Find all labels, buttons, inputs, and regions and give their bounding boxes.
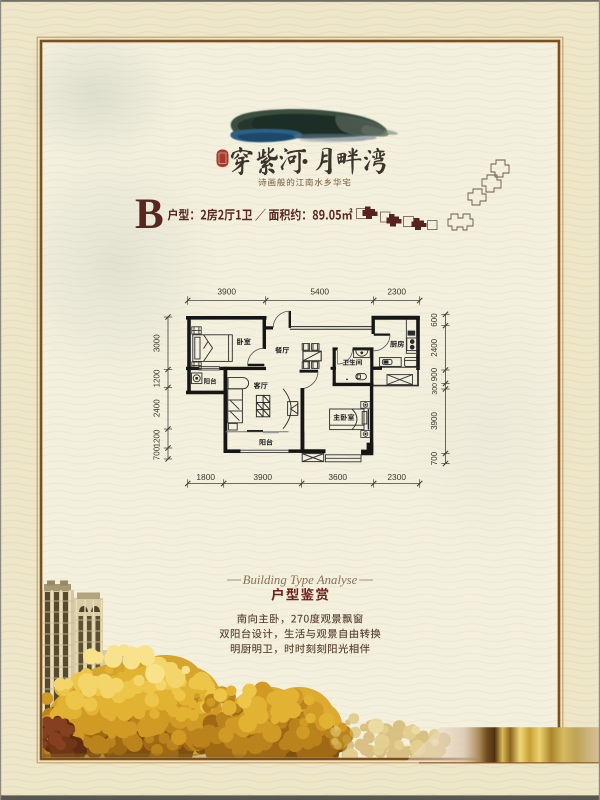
svg-text:3000: 3000 (153, 334, 162, 352)
svg-text:5400: 5400 (310, 287, 329, 297)
svg-text:2400: 2400 (430, 338, 439, 356)
svg-text:3600: 3600 (328, 472, 347, 482)
svg-text:3900: 3900 (217, 287, 236, 297)
svg-text:1200: 1200 (153, 369, 162, 387)
svg-text:300: 300 (432, 383, 439, 395)
svg-text:Building Type Analyse: Building Type Analyse (243, 573, 358, 587)
svg-text:600: 600 (430, 313, 439, 327)
svg-text:900: 900 (430, 367, 439, 381)
svg-text:2300: 2300 (387, 472, 406, 482)
svg-text:700: 700 (430, 451, 439, 465)
svg-text:700: 700 (153, 446, 162, 460)
svg-text:2400: 2400 (153, 399, 162, 417)
svg-text:1800: 1800 (196, 472, 215, 482)
svg-text:2300: 2300 (387, 287, 406, 297)
svg-text:3900: 3900 (253, 472, 272, 482)
svg-text:B: B (135, 191, 164, 238)
svg-text:3900: 3900 (430, 412, 439, 430)
svg-text:1200: 1200 (153, 429, 162, 447)
